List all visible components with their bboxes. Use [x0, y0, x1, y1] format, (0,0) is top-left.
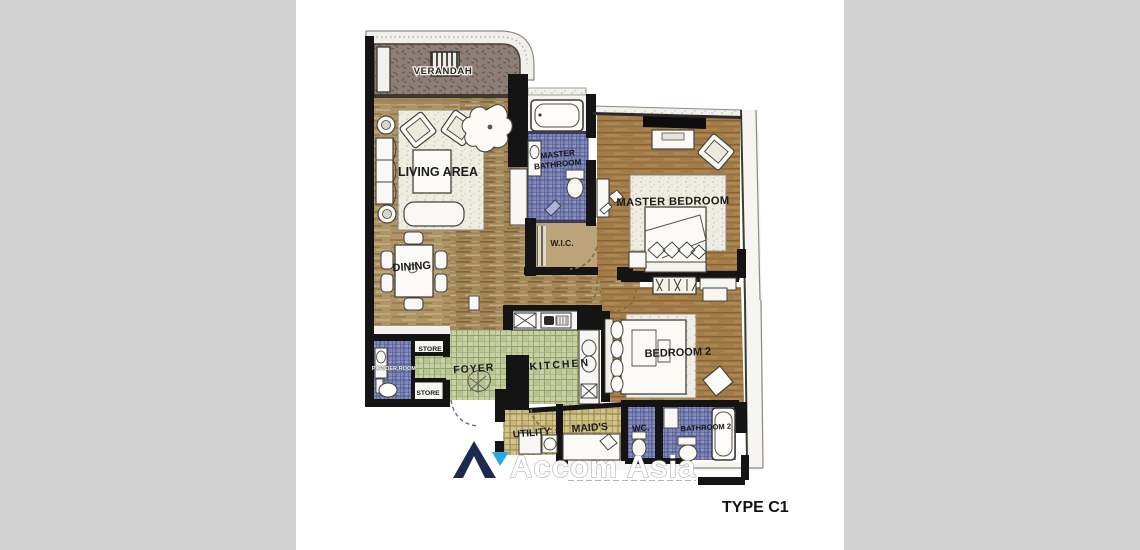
svg-text:VERANDAH: VERANDAH: [414, 66, 473, 77]
svg-text:STORE: STORE: [418, 346, 442, 353]
svg-text:BEDROOM 2: BEDROOM 2: [644, 346, 711, 360]
svg-text:MASTER BEDROOM: MASTER BEDROOM: [616, 195, 729, 209]
svg-text:LIVING AREA: LIVING AREA: [398, 165, 478, 179]
svg-text:WC.: WC.: [632, 422, 650, 433]
svg-text:POWDER ROOM: POWDER ROOM: [372, 366, 416, 372]
svg-text:Accom Asia: Accom Asia: [510, 449, 696, 484]
svg-text:W.I.C.: W.I.C.: [550, 238, 573, 248]
svg-text:STORE: STORE: [416, 390, 440, 397]
svg-text:TYPE C1: TYPE C1: [722, 499, 789, 516]
svg-text:MAID'S: MAID'S: [571, 421, 608, 436]
